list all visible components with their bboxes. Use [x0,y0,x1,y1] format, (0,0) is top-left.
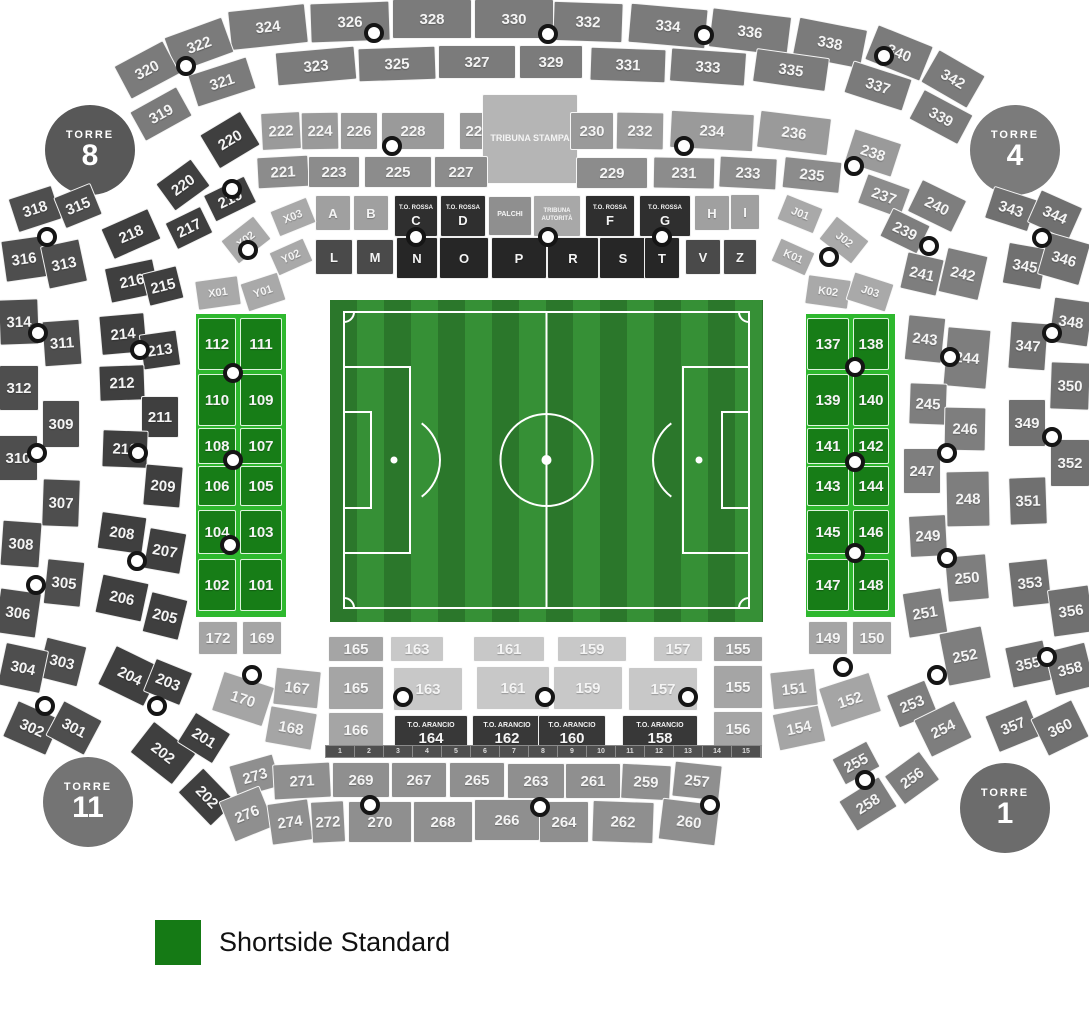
entrance-marker[interactable] [27,443,47,463]
section-149[interactable]: 149 [808,621,848,655]
section-k01[interactable]: K01 [770,237,815,276]
section-225[interactable]: 225 [364,156,432,188]
torre-11: TORRE11 [43,757,133,847]
section-324[interactable]: 324 [227,3,309,51]
section-349[interactable]: 349 [1008,399,1046,447]
gate-number-8: 8 [529,746,558,757]
section-230[interactable]: 230 [570,112,614,150]
gate-number-10: 10 [587,746,616,757]
section-220[interactable]: 220 [199,110,261,169]
entrance-marker[interactable] [678,687,698,707]
section-i[interactable]: I [730,194,760,230]
section-151[interactable]: 151 [769,668,819,711]
section-248[interactable]: 248 [946,471,991,528]
section-274[interactable]: 274 [266,798,313,845]
section-247[interactable]: 247 [903,448,941,494]
torre-8: TORRE8 [45,105,135,195]
section-235[interactable]: 235 [781,156,842,194]
entrance-marker[interactable] [406,227,426,247]
section-z[interactable]: Z [723,239,757,275]
section-111[interactable]: 111 [240,318,282,370]
section-263[interactable]: 263 [507,763,565,799]
entrance-marker[interactable] [1042,323,1062,343]
entrance-marker[interactable] [845,543,865,563]
section-107[interactable]: 107 [240,428,282,464]
section-208[interactable]: 208 [97,511,148,555]
entrance-marker[interactable] [28,323,48,343]
section-169[interactable]: 169 [242,621,282,655]
entrance-marker[interactable] [360,795,380,815]
section-172[interactable]: 172 [198,621,238,655]
entrance-marker[interactable] [674,136,694,156]
section-231[interactable]: 231 [653,156,716,189]
section-261[interactable]: 261 [565,763,621,799]
section-j01[interactable]: J01 [776,194,824,235]
section-144[interactable]: 144 [853,466,889,506]
section-154[interactable]: 154 [772,704,827,751]
torre-1: TORRE1 [960,763,1050,853]
football-pitch [330,300,763,622]
legend: Shortside Standard [155,920,450,965]
entrance-marker[interactable] [37,227,57,247]
section-y01[interactable]: Y01 [239,272,286,313]
section-165[interactable]: 165 [328,666,384,710]
section-h[interactable]: H [694,195,730,231]
section-103[interactable]: 103 [240,510,282,554]
section-259[interactable]: 259 [620,763,672,802]
section-218[interactable]: 218 [100,208,161,260]
section-325[interactable]: 325 [357,46,436,83]
section-150[interactable]: 150 [852,621,892,655]
section-156[interactable]: 156 [713,711,763,747]
entrance-marker[interactable] [223,363,243,383]
entrance-marker[interactable] [128,443,148,463]
torre-number: 8 [82,141,99,171]
section-221[interactable]: 221 [256,155,310,190]
section-o[interactable]: O [439,237,489,279]
section-327[interactable]: 327 [438,45,516,79]
section-308[interactable]: 308 [0,520,43,569]
entrance-marker[interactable] [855,770,875,790]
section-328[interactable]: 328 [392,0,472,39]
gate-number-9: 9 [558,746,587,757]
section-267[interactable]: 267 [391,762,447,798]
section-101[interactable]: 101 [240,559,282,611]
section-226[interactable]: 226 [340,112,378,150]
gate-number-7: 7 [500,746,529,757]
gate-number-15: 15 [732,746,761,757]
section-139[interactable]: 139 [807,374,849,426]
section-y02[interactable]: Y02 [268,237,313,276]
section-105[interactable]: 105 [240,466,282,506]
section-318[interactable]: 318 [8,185,63,233]
section-143[interactable]: 143 [807,466,849,506]
section-223[interactable]: 223 [308,156,360,188]
section-351[interactable]: 351 [1008,476,1048,525]
section-307[interactable]: 307 [41,478,81,527]
section-227[interactable]: 227 [434,156,488,188]
entrance-marker[interactable] [845,357,865,377]
entrance-marker[interactable] [538,227,558,247]
entrance-marker[interactable] [147,696,167,716]
section-272[interactable]: 272 [310,800,346,844]
section-f[interactable]: T.O. ROSSAF [585,195,635,237]
gate-number-6: 6 [471,746,500,757]
entrance-marker[interactable] [382,136,402,156]
section-336[interactable]: 336 [708,7,792,56]
section-329[interactable]: 329 [519,45,583,79]
entrance-marker[interactable] [535,687,555,707]
section-145[interactable]: 145 [807,510,849,554]
section-270[interactable]: 270 [348,801,412,843]
torre-number: 4 [1007,141,1024,171]
entrance-marker[interactable] [1042,427,1062,447]
section-269[interactable]: 269 [332,762,390,798]
gate-number-12: 12 [645,746,674,757]
entrance-marker[interactable] [844,156,864,176]
section-v[interactable]: V [685,239,721,275]
section-304[interactable]: 304 [0,642,49,694]
section-232[interactable]: 232 [616,112,665,151]
section-268[interactable]: 268 [413,801,473,843]
section-215[interactable]: 215 [141,265,184,307]
section-245[interactable]: 245 [908,382,947,425]
gate-number-11: 11 [616,746,645,757]
section-161[interactable]: 161 [473,636,545,662]
section-l[interactable]: L [315,239,353,275]
section-222[interactable]: 222 [260,111,302,151]
entrance-marker[interactable] [393,687,413,707]
torre-number: 1 [997,799,1014,829]
section-d[interactable]: T.O. ROSSAD [440,195,486,237]
entrance-marker[interactable] [694,25,714,45]
entrance-marker[interactable] [937,548,957,568]
gate-number-3: 3 [384,746,413,757]
section-209[interactable]: 209 [142,463,184,508]
torre-number: 11 [72,793,104,823]
section-350[interactable]: 350 [1049,361,1089,410]
section-271[interactable]: 271 [272,762,332,801]
section-305[interactable]: 305 [43,558,86,608]
section-p[interactable]: P [491,237,547,279]
section-265[interactable]: 265 [449,762,505,798]
entrance-marker[interactable] [223,450,243,470]
section-220[interactable]: 220 [155,158,211,211]
section-m[interactable]: M [356,239,394,275]
section-207[interactable]: 207 [143,527,188,575]
section-163[interactable]: 163 [390,636,444,662]
section-262[interactable]: 262 [591,800,654,844]
section-224[interactable]: 224 [301,112,340,151]
section-152[interactable]: 152 [818,672,882,729]
section-212[interactable]: 212 [98,364,145,402]
section-109[interactable]: 109 [240,374,282,426]
section-159[interactable]: 159 [557,636,627,662]
section-233[interactable]: 233 [718,156,778,191]
section-257[interactable]: 257 [671,761,723,802]
entrance-marker[interactable] [538,24,558,44]
gate-number-4: 4 [413,746,442,757]
section-140[interactable]: 140 [853,374,889,426]
section-137[interactable]: 137 [807,318,849,370]
gate-number-5: 5 [442,746,471,757]
entrance-marker[interactable] [242,665,262,685]
section-155[interactable]: 155 [713,665,763,709]
section-242[interactable]: 242 [937,247,988,301]
entrance-marker[interactable] [222,179,242,199]
section-102[interactable]: 102 [198,559,236,611]
section-tribuna-stampa[interactable]: TRIBUNA STAMPA [482,94,578,184]
gate-number-1: 1 [326,746,355,757]
section-229[interactable]: 229 [576,157,648,189]
section-168[interactable]: 168 [264,705,318,751]
section-165[interactable]: 165 [328,636,384,662]
section-j03[interactable]: J03 [845,271,894,313]
entrance-marker[interactable] [1032,228,1052,248]
pitch-markings [330,300,763,622]
entrance-marker[interactable] [927,665,947,685]
section-206[interactable]: 206 [94,573,149,622]
section-356[interactable]: 356 [1047,584,1089,637]
section-141[interactable]: 141 [807,428,849,464]
section-s[interactable]: S [599,237,647,279]
torre-4: TORRE4 [970,105,1060,195]
entrance-marker[interactable] [238,240,258,260]
section-159[interactable]: 159 [553,666,623,710]
section-323[interactable]: 323 [275,46,358,87]
gate-number-14: 14 [703,746,732,757]
entrance-marker[interactable] [364,23,384,43]
entrance-marker[interactable] [176,56,196,76]
section-217[interactable]: 217 [164,206,213,250]
entrance-marker[interactable] [1037,647,1057,667]
section-x03[interactable]: X03 [269,197,317,238]
entrance-marker[interactable] [833,657,853,677]
entrance-marker[interactable] [874,46,894,66]
section-312[interactable]: 312 [0,365,39,411]
section-157[interactable]: 157 [653,636,703,662]
section-palchi[interactable]: PALCHI [488,196,532,236]
gate-number-strip: 123456789101112131415 [325,745,762,758]
gate-number-13: 13 [674,746,703,757]
section-306[interactable]: 306 [0,587,42,638]
entrance-marker[interactable] [700,795,720,815]
section-b[interactable]: B [353,195,389,231]
entrance-marker[interactable] [845,452,865,472]
entrance-marker[interactable] [530,797,550,817]
section-106[interactable]: 106 [198,466,236,506]
section-a[interactable]: A [315,195,351,231]
legend-color-swatch [155,920,201,965]
entrance-marker[interactable] [652,227,672,247]
section-251[interactable]: 251 [902,587,949,639]
section-148[interactable]: 148 [853,559,889,611]
gate-number-2: 2 [355,746,384,757]
stadium-seat-map: Shortside Standard 324326328330332334336… [0,0,1089,1032]
section-155[interactable]: 155 [713,636,763,662]
section-236[interactable]: 236 [756,110,832,156]
section-205[interactable]: 205 [141,591,188,641]
entrance-marker[interactable] [130,340,150,360]
section-343[interactable]: 343 [984,186,1038,233]
legend-label: Shortside Standard [219,927,450,958]
entrance-marker[interactable] [26,575,46,595]
entrance-marker[interactable] [940,347,960,367]
section-309[interactable]: 309 [42,400,80,448]
section-166[interactable]: 166 [328,712,384,748]
entrance-marker[interactable] [220,535,240,555]
entrance-marker[interactable] [937,443,957,463]
section-x01[interactable]: X01 [194,275,242,311]
entrance-marker[interactable] [819,247,839,267]
section-311[interactable]: 311 [41,319,82,368]
entrance-marker[interactable] [35,696,55,716]
section-332[interactable]: 332 [552,1,623,43]
section-331[interactable]: 331 [589,47,666,84]
entrance-marker[interactable] [127,551,147,571]
section-353[interactable]: 353 [1008,558,1053,608]
section-k02[interactable]: K02 [804,274,852,310]
entrance-marker[interactable] [919,236,939,256]
section-360[interactable]: 360 [1030,699,1089,757]
section-147[interactable]: 147 [807,559,849,611]
section-167[interactable]: 167 [272,667,322,710]
section-333[interactable]: 333 [669,47,747,86]
